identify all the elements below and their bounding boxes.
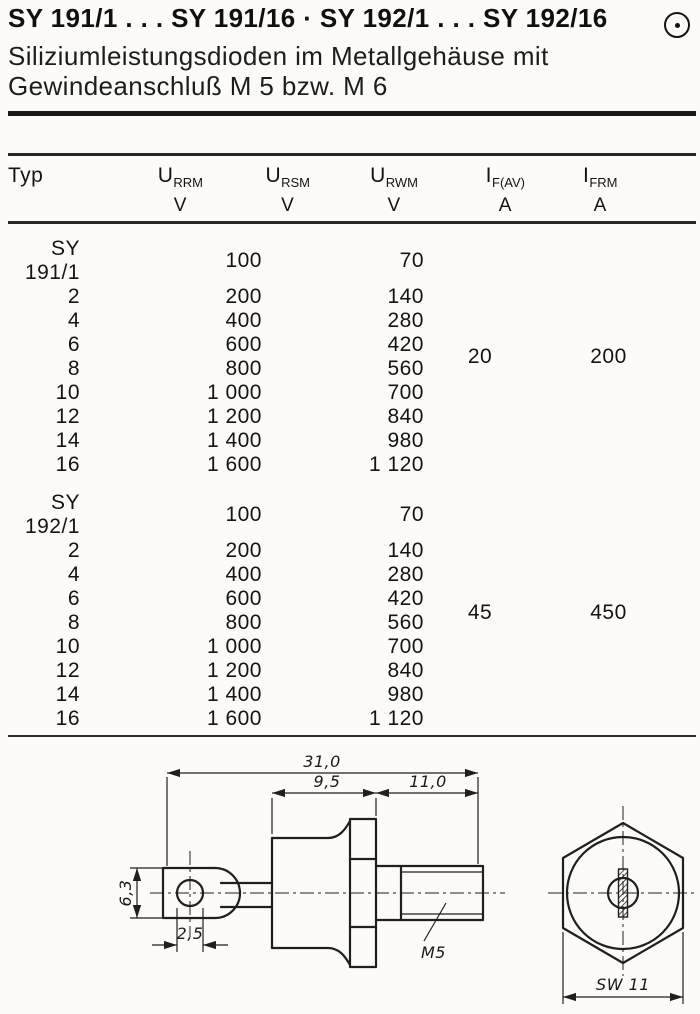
subtitle-line-1: Siliziumleistungsdioden im Metallgehäuse… [8,41,668,71]
subtitle-line-2: Gewindeanschluß M 5 bzw. M 6 [8,71,668,101]
dimension-overall-length: 31,0 [167,752,478,866]
dimension-body-length: 9,5 [272,772,376,834]
datasheet-page: { "header": { "title": "SY 191/1 . . . S… [0,0,700,1014]
table-body: SY 191/1 100 70 20 200 2200140 4400280 6… [8,223,696,737]
column-header-urwm: URWMV [316,155,424,223]
thread-callout: M5 [421,903,446,962]
dim-hole-label: 2,5 [177,924,204,943]
column-header-urrm: URRMV [80,155,262,223]
page-subtitle: Siliziumleistungsdioden im Metallgehäuse… [8,41,668,101]
ratings-table: Typ URRMV URSMV URWMV IF(AV)A IFRMA SY 1… [8,153,696,737]
column-header-ursm: URSMV [262,155,316,223]
wrench-size-label: SW 11 [596,975,650,994]
column-header-ifrm: IFRMA [536,155,696,223]
ifav-value-sy192: 45 [424,477,536,736]
ifrm-value-sy192: 450 [536,477,696,736]
dimension-thread-length: 11,0 [376,772,478,793]
dim-overall-label: 31,0 [303,752,341,771]
side-view: 31,0 9,5 11,0 6,3 2,5 [116,752,505,967]
table-row: SY 191/1 100 70 20 200 [8,223,696,286]
header-divider [8,111,696,116]
dim-tab-height-label: 6,3 [116,880,135,907]
end-view: SW 11 [548,806,698,1004]
dim-body-label: 9,5 [314,772,341,791]
screwdriver-slot [619,869,628,917]
circled-dot-icon [664,12,690,38]
table-row: SY 192/1 100 70 45 450 [8,477,696,539]
ifav-value-sy191: 20 [424,223,536,478]
ratings-table-wrapper: Typ URRMV URSMV URWMV IF(AV)A IFRMA SY 1… [8,153,696,737]
column-header-ifav: IF(AV)A [424,155,536,223]
column-header-typ: Typ [8,155,80,223]
dim-thread-label: 11,0 [409,772,447,791]
thread-label: M5 [421,943,446,962]
table-header: Typ URRMV URSMV URWMV IF(AV)A IFRMA [8,155,696,223]
page-title: SY 191/1 . . . SY 191/16 · SY 192/1 . . … [8,3,658,34]
package-outline-drawing: 31,0 9,5 11,0 6,3 2,5 [0,735,700,1014]
ifrm-value-sy191: 200 [536,223,696,478]
